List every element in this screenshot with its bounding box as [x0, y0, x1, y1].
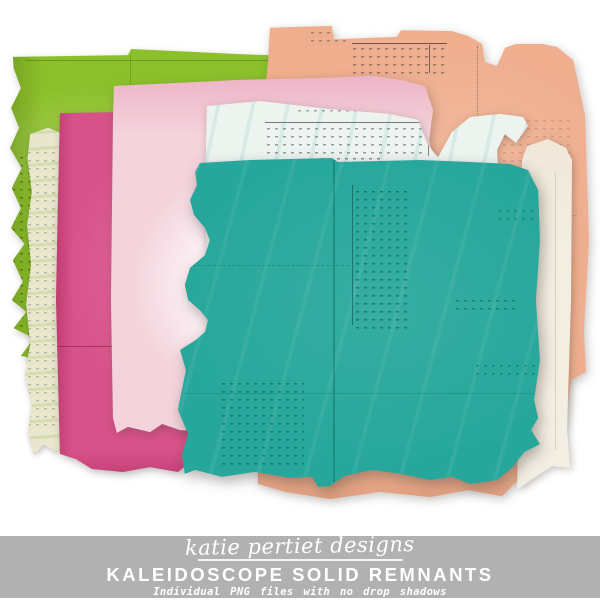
teal-stamp-marks-d — [476, 365, 546, 375]
paper-teal-remnant — [176, 155, 544, 490]
teal-dotted-crease — [183, 265, 349, 266]
teal-stamp-marks-e — [498, 210, 538, 220]
brand-script-logo: katie pertiet designs — [185, 534, 415, 559]
ivory-crease-line — [555, 173, 556, 449]
whiteblue-print-rule-vertical — [428, 126, 429, 156]
whiteblue-print-marks — [267, 128, 425, 158]
paper-teal-layer — [176, 155, 544, 490]
whiteblue-print-marks-top — [298, 102, 358, 112]
product-subtitle: Individual PNG files with no drop shadow… — [153, 586, 447, 598]
peach-print-rule — [352, 43, 447, 44]
teal-stamp-marks-c — [456, 300, 520, 314]
teal-stamp-rule — [352, 185, 353, 325]
product-image: katie pertiet designs KALEIDOSCOPE SOLID… — [0, 0, 600, 600]
product-title: KALEIDOSCOPE SOLID REMNANTS — [106, 565, 493, 584]
teal-fold-line-horizontal — [183, 393, 533, 394]
brand-banner: katie pertiet designs KALEIDOSCOPE SOLID… — [0, 536, 600, 598]
teal-fold-line-vertical — [333, 160, 335, 482]
teal-stamp-marks-b — [222, 383, 304, 471]
teal-stamp-marks-a — [356, 191, 412, 329]
whiteblue-print-rule — [265, 122, 430, 123]
peach-print-marks-small — [311, 32, 347, 44]
